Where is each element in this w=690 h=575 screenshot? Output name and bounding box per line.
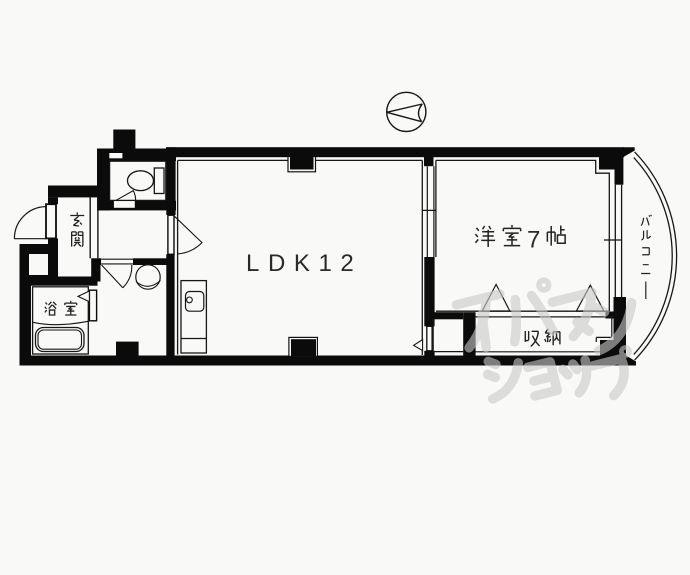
svg-text:7: 7	[527, 226, 540, 253]
svg-text:LDK12: LDK12	[246, 250, 362, 277]
